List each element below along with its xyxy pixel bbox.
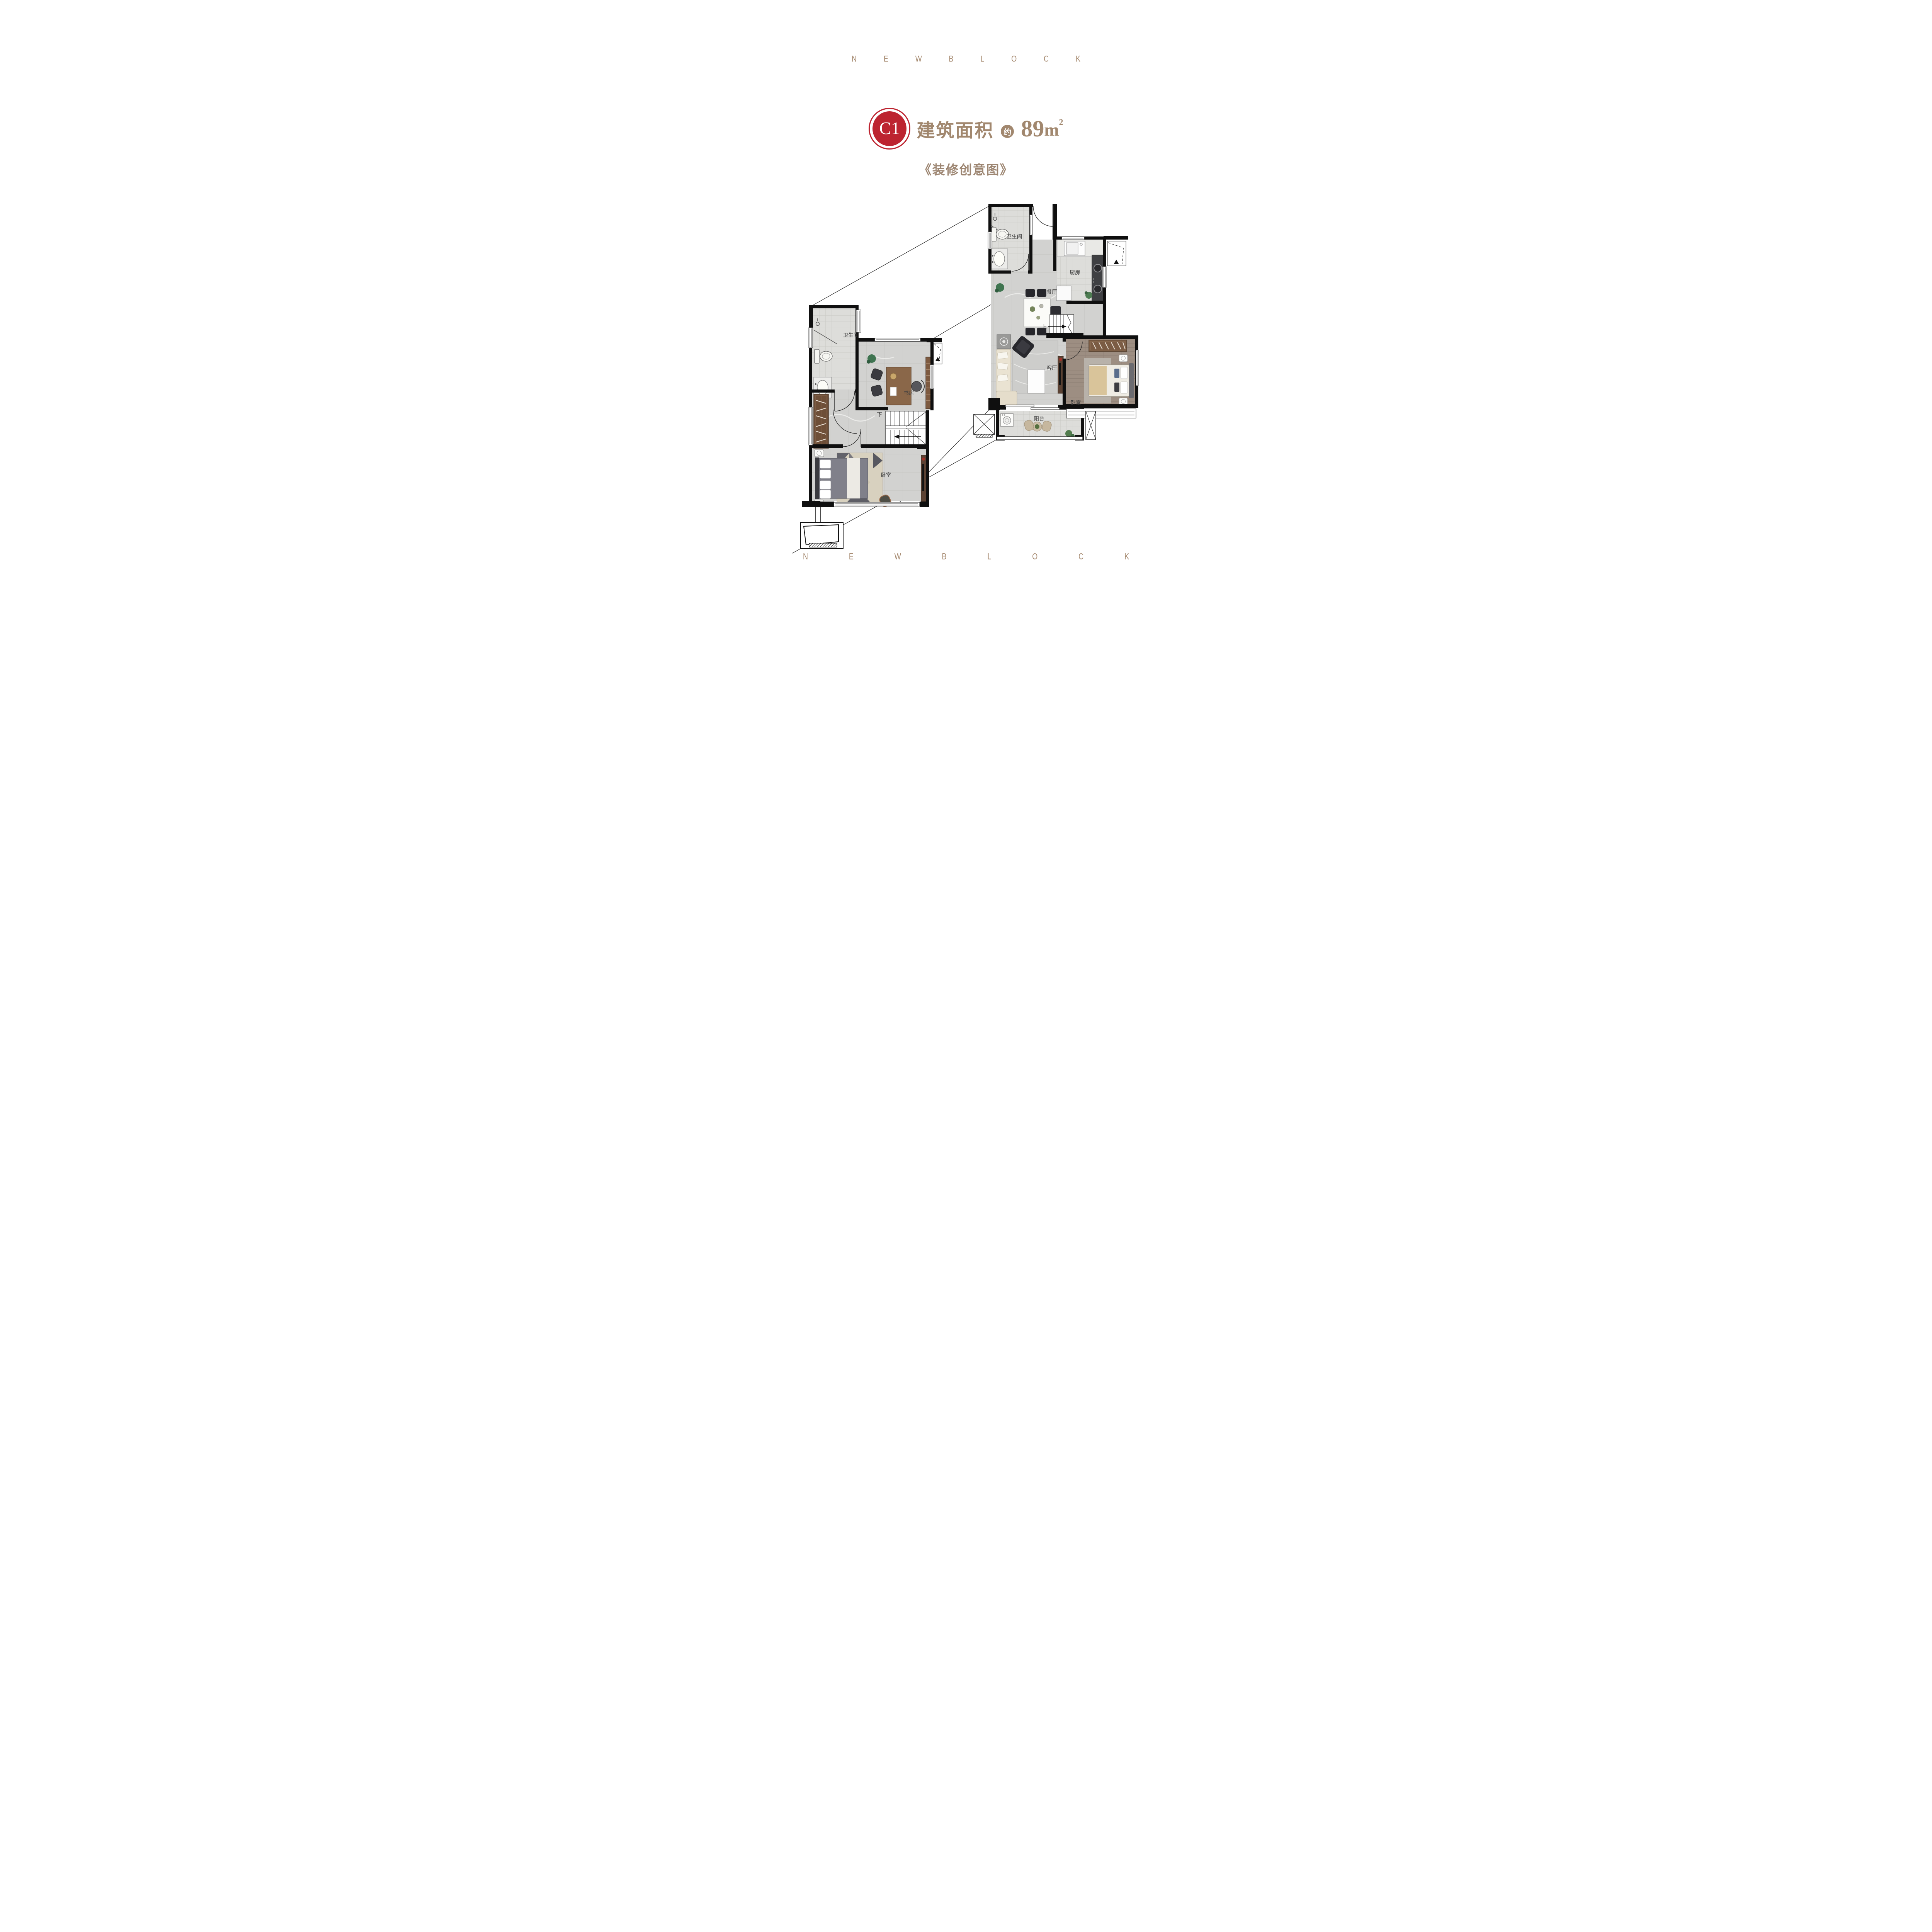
room-label-study: 书房 — [904, 390, 914, 396]
stove-icon — [1092, 255, 1104, 301]
stairs-down — [886, 411, 926, 445]
brand-wordmark-bottom: N E W B L O C K — [803, 553, 1129, 560]
tv-console — [921, 455, 926, 502]
sink-icon — [991, 249, 1008, 269]
poster-page: N E W B L O C K C1 建筑面积 约 89 m 2 《装修创意图》 — [757, 0, 1175, 600]
dining-table — [1024, 298, 1050, 327]
room-label-dining: 餐厅 — [1047, 289, 1057, 295]
fridge-icon — [1056, 286, 1071, 301]
ac-unit-box — [974, 414, 995, 437]
coffee-table — [1028, 369, 1045, 393]
floor-plan-canvas: 卫生间 厨房 餐厅 上 客厅 卧室 阳台 — [757, 0, 1175, 600]
room-label-bedroom-1f: 卧室 — [1071, 400, 1081, 406]
bed-icon — [1089, 363, 1134, 398]
floor-plan-first-floor: 卫生间 厨房 餐厅 上 客厅 卧室 阳台 — [974, 204, 1138, 440]
room-label-bedroom-2f: 卧室 — [881, 472, 891, 478]
stairs-down-label: 下 — [877, 412, 883, 418]
room-label-kitchen: 厨房 — [1070, 270, 1080, 276]
brand-letter: K — [1124, 552, 1129, 561]
wardrobe-icon — [1089, 340, 1127, 352]
ac-platform-dashed — [1107, 241, 1126, 266]
room-label-living: 客厅 — [1047, 365, 1057, 371]
ac-outdoor-unit — [801, 507, 843, 549]
room-label-bathroom-1f: 卫生间 — [1007, 234, 1022, 240]
brand-letter: W — [895, 552, 901, 561]
brand-letter: L — [987, 552, 991, 561]
washing-machine-icon — [1001, 413, 1013, 427]
stairs-up — [1048, 315, 1074, 335]
stairs-up-label: 上 — [1041, 324, 1047, 330]
brand-letter: N — [803, 552, 808, 561]
kitchen-sink-icon — [1064, 241, 1085, 256]
tv-console — [1058, 356, 1063, 393]
brand-letter: O — [1032, 552, 1037, 561]
ac-unit-box — [1086, 411, 1096, 440]
brand-letter: C — [1078, 552, 1083, 561]
room-label-bathroom-2f: 卫生间 — [843, 332, 859, 338]
ac-platform-dashed — [934, 343, 942, 364]
wardrobe-icon — [814, 394, 828, 448]
bed-icon — [815, 457, 868, 499]
desk-icon — [886, 367, 911, 405]
floor-plan-second-floor: 卫生间 书房 下 卧室 — [801, 305, 942, 549]
room-label-balcony: 阳台 — [1034, 416, 1044, 422]
brand-letter: B — [942, 552, 947, 561]
brand-letter: E — [849, 552, 854, 561]
